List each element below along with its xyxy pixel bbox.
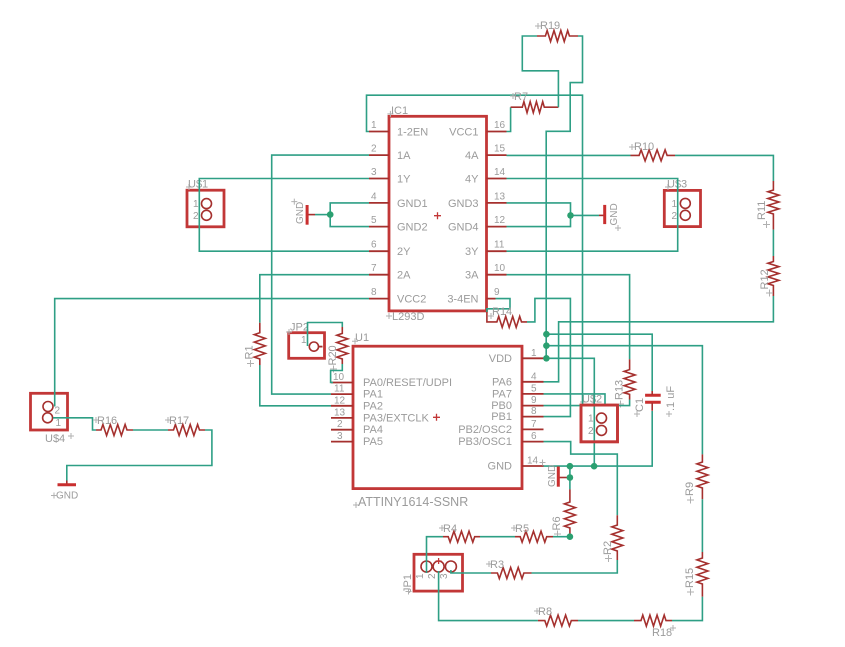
svg-text:16: 16 <box>494 120 506 131</box>
svg-text:GND: GND <box>56 491 78 502</box>
svg-text:2: 2 <box>672 211 678 222</box>
svg-text:6: 6 <box>371 240 377 251</box>
svg-text:GND: GND <box>547 465 558 487</box>
svg-text:10: 10 <box>333 372 345 383</box>
svg-text:R12: R12 <box>759 269 771 289</box>
svg-text:R17: R17 <box>169 415 189 427</box>
svg-text:2: 2 <box>427 573 438 579</box>
svg-text:R20: R20 <box>327 345 339 365</box>
svg-text:PB3/OSC1: PB3/OSC1 <box>458 436 512 448</box>
svg-text:R18: R18 <box>652 627 672 639</box>
svg-text:14: 14 <box>494 167 506 178</box>
svg-text:PA2: PA2 <box>363 400 383 412</box>
svg-text:R10: R10 <box>634 141 654 153</box>
svg-text:U$4: U$4 <box>45 433 65 445</box>
svg-text:VCC2: VCC2 <box>397 294 426 306</box>
svg-text:GND2: GND2 <box>397 222 428 234</box>
svg-text:3-4EN: 3-4EN <box>447 294 478 306</box>
svg-text:1: 1 <box>301 335 307 346</box>
svg-text:C1: C1 <box>634 398 646 412</box>
svg-text:R11: R11 <box>756 201 768 220</box>
svg-text:R14: R14 <box>492 306 512 318</box>
svg-text:PA1: PA1 <box>363 389 383 401</box>
svg-text:VDD: VDD <box>489 353 512 365</box>
svg-text:PA4: PA4 <box>363 424 383 436</box>
svg-text:8: 8 <box>371 287 377 298</box>
svg-text:2A: 2A <box>397 270 411 282</box>
svg-text:1Y: 1Y <box>397 174 411 186</box>
svg-text:1: 1 <box>588 414 594 425</box>
svg-text:2: 2 <box>588 426 594 437</box>
svg-text:2: 2 <box>55 406 61 417</box>
svg-text:U1: U1 <box>355 332 369 344</box>
svg-text:3: 3 <box>337 431 343 442</box>
svg-text:12: 12 <box>334 395 346 406</box>
svg-text:JP2: JP2 <box>290 322 309 334</box>
svg-text:3: 3 <box>371 167 377 178</box>
svg-text:R19: R19 <box>540 20 560 32</box>
svg-text:2: 2 <box>371 144 377 155</box>
svg-text:13: 13 <box>334 407 346 418</box>
svg-text:3: 3 <box>439 573 450 579</box>
svg-text:10: 10 <box>494 263 506 274</box>
svg-text:R7: R7 <box>514 91 528 103</box>
svg-text:4Y: 4Y <box>465 174 479 186</box>
svg-text:5: 5 <box>531 383 537 394</box>
svg-text:14: 14 <box>527 456 539 467</box>
svg-text:GND: GND <box>295 202 306 224</box>
svg-text:U$1: U$1 <box>188 179 208 191</box>
svg-text:9: 9 <box>531 395 537 406</box>
svg-text:.1 uF: .1 uF <box>665 386 677 411</box>
svg-text:6: 6 <box>531 431 537 442</box>
svg-text:IC1: IC1 <box>391 105 408 117</box>
svg-text:R5: R5 <box>515 523 529 535</box>
svg-text:1: 1 <box>531 348 537 359</box>
svg-text:PB2/OSC2: PB2/OSC2 <box>458 424 512 436</box>
svg-text:R3: R3 <box>490 559 504 571</box>
svg-text:R4: R4 <box>443 523 457 535</box>
svg-text:3Y: 3Y <box>465 246 479 258</box>
svg-text:11: 11 <box>494 240 505 251</box>
svg-text:PA3/EXTCLK: PA3/EXTCLK <box>363 412 429 424</box>
svg-text:R6: R6 <box>551 516 563 530</box>
svg-text:4A: 4A <box>465 150 479 162</box>
svg-text:GND1: GND1 <box>397 198 428 210</box>
svg-text:1A: 1A <box>397 150 411 162</box>
svg-text:1-2EN: 1-2EN <box>397 127 428 139</box>
svg-text:R16: R16 <box>97 415 117 427</box>
svg-text:5: 5 <box>371 215 377 226</box>
svg-text:R13: R13 <box>614 380 626 400</box>
svg-text:4: 4 <box>531 371 537 382</box>
svg-text:R9: R9 <box>684 482 696 496</box>
svg-text:PA6: PA6 <box>492 376 512 388</box>
svg-text:2: 2 <box>193 211 199 222</box>
svg-text:13: 13 <box>494 191 506 202</box>
svg-text:1: 1 <box>56 418 62 429</box>
svg-text:GND: GND <box>488 461 513 473</box>
svg-text:4: 4 <box>371 191 377 202</box>
svg-text:PA7: PA7 <box>492 388 512 400</box>
svg-text:1: 1 <box>415 573 426 579</box>
svg-text:ATTINY1614-SSNR: ATTINY1614-SSNR <box>358 495 468 509</box>
svg-text:PA0/RESET/UDPI: PA0/RESET/UDPI <box>363 377 452 389</box>
svg-text:PA5: PA5 <box>363 436 383 448</box>
svg-text:PB1: PB1 <box>491 411 512 423</box>
svg-text:L293D: L293D <box>392 311 424 323</box>
svg-text:3A: 3A <box>465 270 479 282</box>
svg-text:12: 12 <box>494 215 506 226</box>
svg-text:1: 1 <box>193 199 199 210</box>
svg-text:GND3: GND3 <box>448 198 479 210</box>
svg-text:7: 7 <box>371 263 377 274</box>
svg-text:2Y: 2Y <box>397 246 411 258</box>
svg-text:11: 11 <box>334 384 345 395</box>
svg-text:GND4: GND4 <box>448 222 479 234</box>
svg-text:2: 2 <box>337 419 343 430</box>
svg-text:VCC1: VCC1 <box>449 127 478 139</box>
svg-text:R1: R1 <box>244 345 256 359</box>
svg-text:GND: GND <box>609 203 620 225</box>
svg-text:R2: R2 <box>602 541 614 555</box>
svg-text:9: 9 <box>494 287 500 298</box>
svg-text:7: 7 <box>531 419 537 430</box>
svg-text:R15: R15 <box>684 568 696 588</box>
svg-text:1: 1 <box>672 199 678 210</box>
svg-text:15: 15 <box>494 144 506 155</box>
svg-text:8: 8 <box>531 406 537 417</box>
svg-text:R8: R8 <box>538 606 552 618</box>
svg-text:1: 1 <box>371 120 377 131</box>
